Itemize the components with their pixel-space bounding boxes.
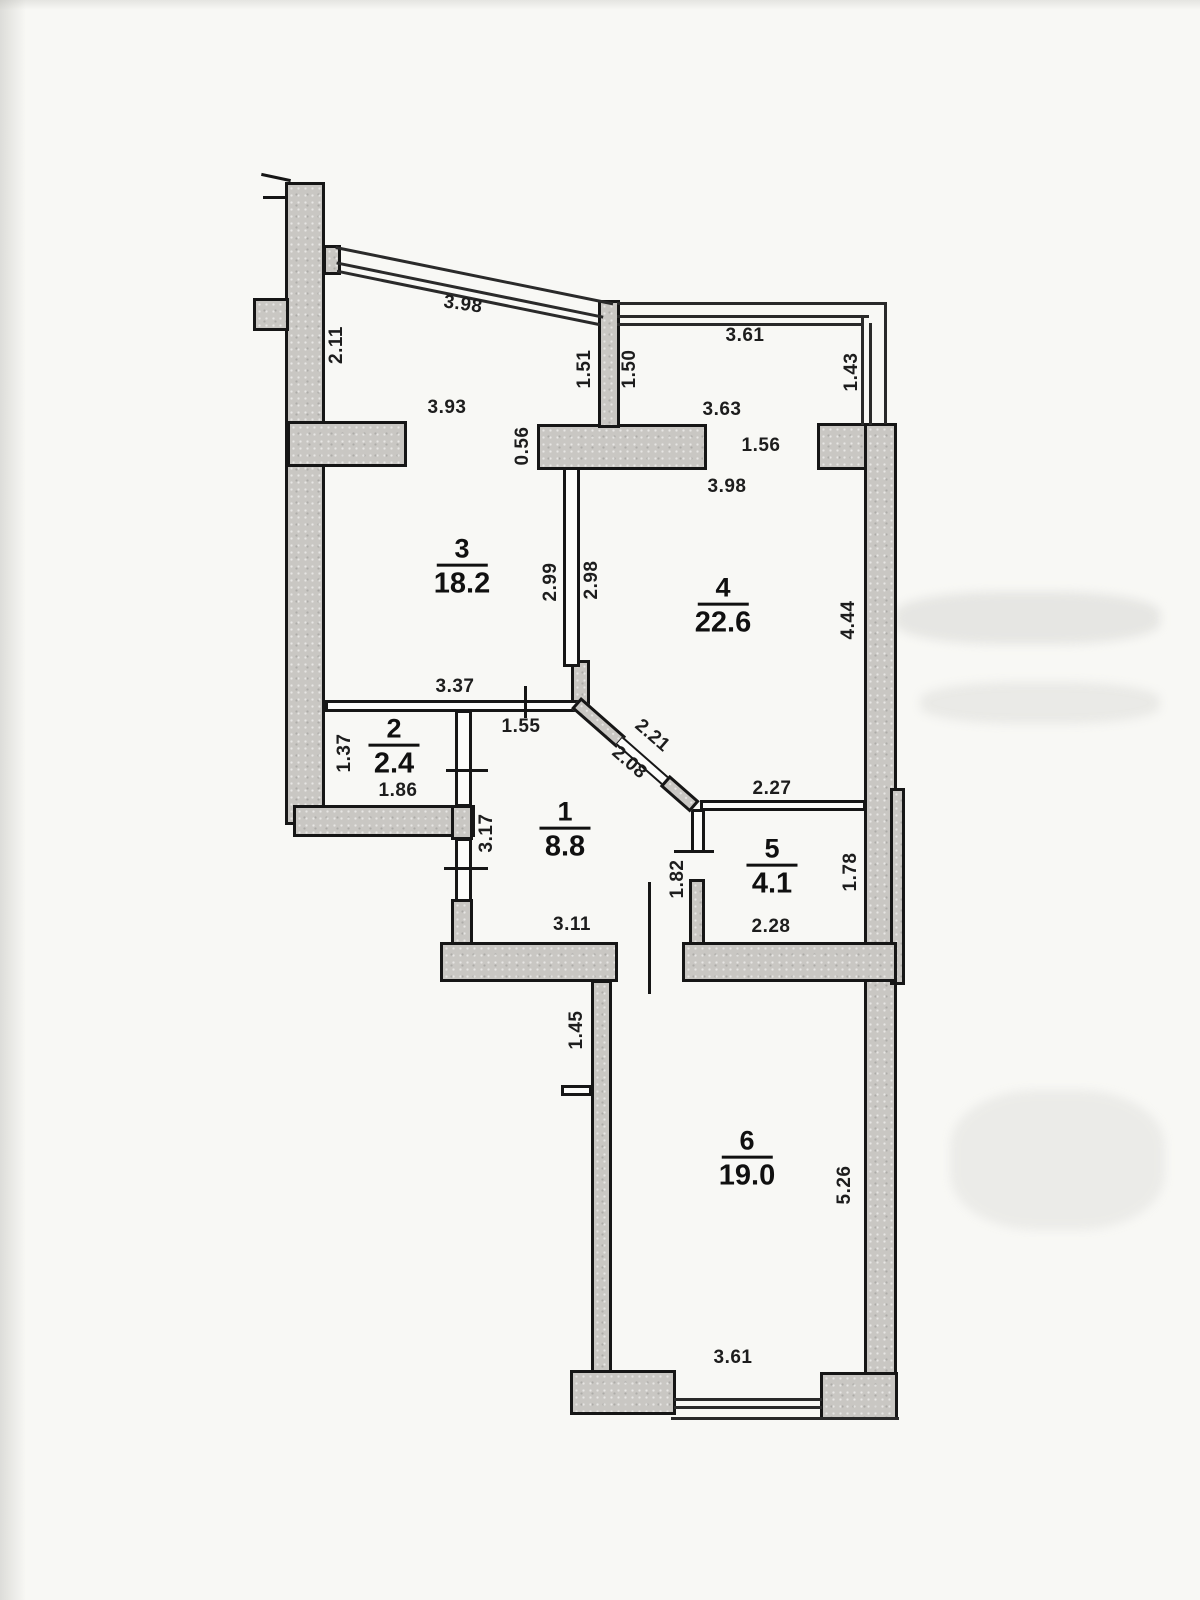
wall-room6-bottom-right bbox=[820, 1372, 898, 1420]
door-opening-tick bbox=[674, 850, 714, 853]
wall-room6-left bbox=[591, 980, 612, 1374]
window-line bbox=[674, 1406, 822, 1409]
dim-room4-right: 4.44 bbox=[838, 601, 860, 640]
room-4-number: 4 bbox=[697, 574, 748, 606]
room-3-number: 3 bbox=[436, 535, 487, 567]
dim-room5-bottom: 2.28 bbox=[752, 916, 791, 938]
wall-left-outer bbox=[285, 182, 325, 825]
scan-artifact bbox=[895, 592, 1160, 644]
room-6-number: 6 bbox=[721, 1127, 772, 1159]
room-5-area: 4.1 bbox=[746, 868, 797, 901]
room-2-number: 2 bbox=[368, 715, 419, 747]
dim-loggia-right-bottom: 3.63 bbox=[703, 399, 742, 421]
door-opening-tick bbox=[446, 769, 488, 772]
dim-loggia-right-top: 3.61 bbox=[726, 325, 765, 347]
wall-top-hook-line bbox=[261, 173, 291, 182]
wall-room6-stub bbox=[561, 1085, 592, 1096]
dim-balcony-divider-left: 1.51 bbox=[574, 350, 596, 389]
dim-hall-left: 3.17 bbox=[476, 814, 498, 853]
room-3-label: 3 18.2 bbox=[434, 535, 490, 602]
window-room6-outer-sill bbox=[671, 1417, 899, 1420]
wall-tick-mark bbox=[263, 196, 285, 199]
door-opening-tick bbox=[444, 867, 488, 870]
window-line bbox=[674, 1398, 822, 1401]
dim-loggia-left-side: 2.11 bbox=[326, 326, 348, 364]
scan-artifact bbox=[920, 682, 1160, 724]
room-3-area: 18.2 bbox=[434, 568, 490, 601]
wall-diagonal-lower bbox=[660, 775, 700, 813]
dim-wall-segment: 0.56 bbox=[512, 427, 534, 466]
dim-room6-left-offset: 1.45 bbox=[566, 1011, 588, 1050]
dim-room5-top: 2.27 bbox=[753, 778, 792, 800]
scan-edge-shading bbox=[0, 0, 1200, 10]
dim-loggia-left-bottom: 3.93 bbox=[428, 397, 467, 419]
window-line bbox=[869, 323, 872, 425]
wall-room3-top-left bbox=[287, 421, 407, 467]
wall-room6-bottom-left bbox=[570, 1370, 676, 1415]
wall-room5-left bbox=[691, 809, 705, 853]
window-loggia-right-outer-side bbox=[884, 302, 887, 424]
room-1-area: 8.8 bbox=[539, 831, 590, 864]
dim-loggia-right-side: 1.43 bbox=[841, 353, 863, 392]
dim-room4-balcony-opening: 1.56 bbox=[742, 435, 781, 457]
dim-room2-left: 1.37 bbox=[334, 734, 356, 773]
wall-room2-bottom-step bbox=[451, 805, 473, 840]
scan-artifact bbox=[950, 1090, 1165, 1230]
dim-room3-bottom: 3.37 bbox=[436, 676, 475, 698]
dim-loggia-left-glazing: 3.98 bbox=[442, 291, 484, 318]
dim-room5-left: 1.82 bbox=[667, 860, 689, 899]
wall-room4-top-left bbox=[537, 424, 707, 470]
dim-room4-left: 2.98 bbox=[581, 561, 603, 600]
dim-room6-bottom: 3.61 bbox=[714, 1347, 753, 1369]
window-loggia-right-outer-top bbox=[617, 302, 887, 305]
wall-left-bump bbox=[253, 298, 289, 331]
dim-room5-right: 1.78 bbox=[840, 853, 862, 892]
door-opening-line-room6 bbox=[648, 882, 651, 994]
window-line bbox=[617, 315, 869, 318]
dim-diag-wall-inner: 2.08 bbox=[607, 742, 651, 784]
room-5-label: 5 4.1 bbox=[746, 835, 797, 902]
wall-room2-right bbox=[455, 710, 472, 807]
dim-hall-top-opening: 1.55 bbox=[502, 716, 541, 738]
wall-room3-room4-divider bbox=[563, 467, 580, 667]
scan-edge-shading bbox=[0, 0, 26, 1600]
wall-room5-left-pier bbox=[689, 879, 705, 945]
room-2-area: 2.4 bbox=[368, 748, 419, 781]
wall-entrance bbox=[455, 838, 472, 902]
room-2-label: 2 2.4 bbox=[368, 715, 419, 782]
wall-diagonal-upper bbox=[571, 697, 626, 748]
room-5-number: 5 bbox=[746, 835, 797, 867]
door-opening-tick bbox=[524, 686, 527, 718]
dim-room3-right: 2.99 bbox=[540, 563, 562, 602]
room-1-label: 1 8.8 bbox=[539, 798, 590, 865]
room-6-area: 19.0 bbox=[719, 1160, 775, 1193]
dim-room4-top: 3.98 bbox=[708, 476, 747, 498]
dim-balcony-divider-right: 1.50 bbox=[619, 350, 641, 389]
room-4-area: 22.6 bbox=[695, 607, 751, 640]
wall-room2-bottom bbox=[293, 805, 475, 837]
floor-plan-page: 3.98 2.11 3.93 1.51 1.50 3.61 1.43 3.63 … bbox=[0, 0, 1200, 1600]
room-4-label: 4 22.6 bbox=[695, 574, 751, 641]
dim-room2-bottom: 1.86 bbox=[379, 780, 418, 802]
dim-hall-bottom: 3.11 bbox=[553, 914, 591, 936]
dim-room6-right: 5.26 bbox=[834, 1166, 856, 1205]
room-1-number: 1 bbox=[539, 798, 590, 830]
wall-corridor-bottom-left bbox=[440, 942, 618, 982]
wall-corridor-bottom-right bbox=[682, 942, 897, 982]
room-6-label: 6 19.0 bbox=[719, 1127, 775, 1194]
wall-room5-top bbox=[700, 800, 866, 811]
wall-entrance-stub bbox=[451, 899, 473, 945]
